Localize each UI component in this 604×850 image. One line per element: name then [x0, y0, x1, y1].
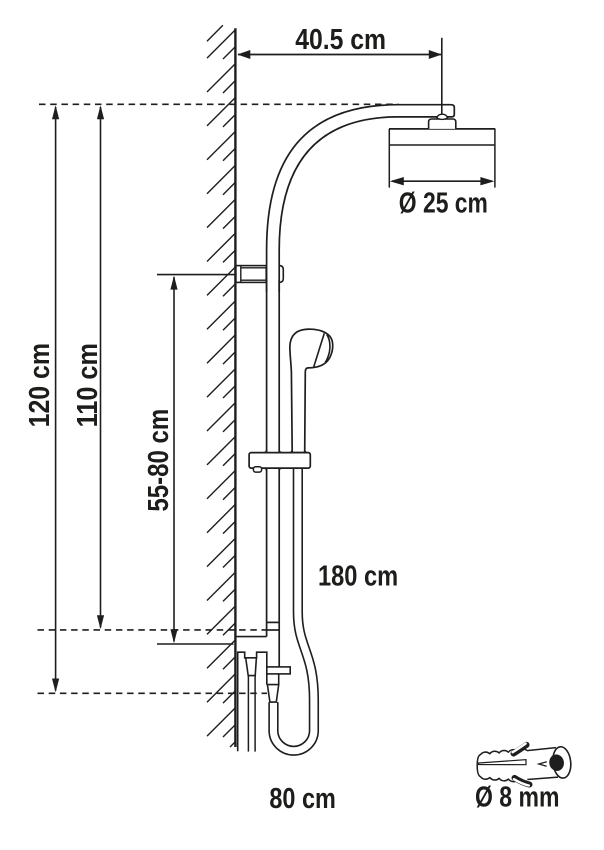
- svg-text:110 cm: 110 cm: [72, 343, 104, 427]
- svg-text:80 cm: 80 cm: [269, 783, 336, 815]
- svg-text:180 cm: 180 cm: [318, 560, 398, 592]
- svg-text:55-80 cm: 55-80 cm: [143, 409, 175, 512]
- svg-text:Ø 25 cm: Ø 25 cm: [399, 188, 488, 220]
- svg-text:120 cm: 120 cm: [24, 343, 56, 427]
- svg-text:40.5 cm: 40.5 cm: [295, 24, 386, 56]
- svg-text:Ø 8 mm: Ø 8 mm: [475, 781, 559, 813]
